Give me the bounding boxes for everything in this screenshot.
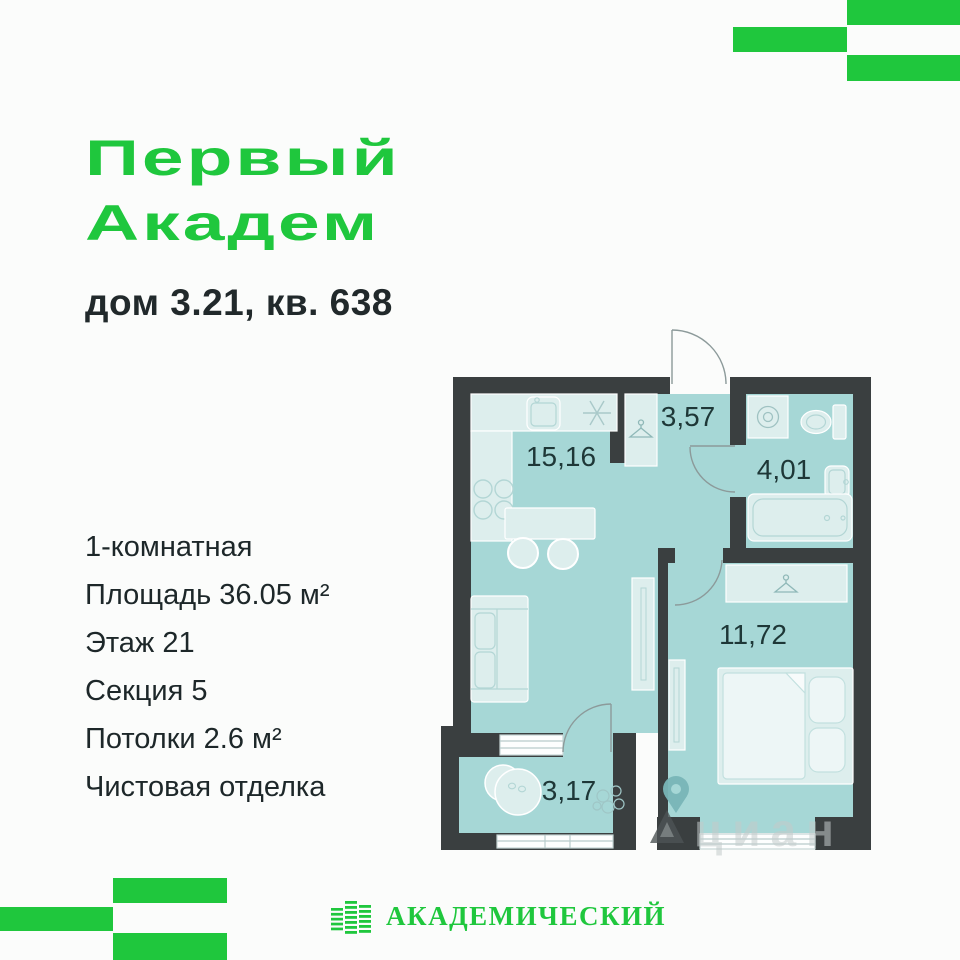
- dresser: [669, 660, 685, 750]
- deco-bar-bottom-left-2: [0, 907, 113, 931]
- floor-plan: 15,16 3,57 4,01 11,72 3,17 циан: [430, 318, 880, 860]
- dining-table: [505, 508, 595, 539]
- washing-machine-icon: [748, 396, 788, 438]
- developer-logo-text: АКАДЕМИЧЕСКИЙ: [386, 901, 666, 932]
- info-ceiling: Потолки 2.6 м²: [85, 715, 330, 763]
- chair: [508, 538, 538, 568]
- watermark-text: циан: [694, 804, 844, 856]
- balcony-inner-window: [500, 735, 563, 755]
- title-line-2: Академ: [85, 191, 401, 256]
- apartment-info-list: 1-комнатная Площадь 36.05 м² Этаж 21 Сек…: [85, 523, 330, 811]
- area-label-kitchen-living: 15,16: [526, 441, 596, 472]
- pillow: [809, 728, 845, 772]
- double-bed: [718, 668, 853, 784]
- deco-bar-top-right-3: [847, 55, 960, 81]
- info-section: Секция 5: [85, 667, 330, 715]
- info-rooms: 1-комнатная: [85, 523, 330, 571]
- shelving-unit: [632, 578, 654, 690]
- deco-bar-top-right-1: [847, 0, 960, 25]
- complex-title: Первый Академ: [85, 126, 401, 256]
- balcony-outer-window: [497, 835, 613, 848]
- deco-bar-bottom-left-3: [113, 933, 227, 960]
- balcony-table: [495, 769, 541, 815]
- area-label-balcony: 3,17: [542, 775, 597, 806]
- pillow: [809, 677, 845, 723]
- info-finish: Чистовая отделка: [85, 763, 330, 811]
- kitchen-sink-icon: [527, 397, 560, 430]
- info-area: Площадь 36.05 м²: [85, 571, 330, 619]
- washbasin-icon: [825, 466, 849, 498]
- hallway-wardrobe: [625, 394, 657, 466]
- bedroom-doorway: [675, 548, 723, 563]
- chair: [548, 539, 578, 569]
- area-label-bedroom: 11,72: [719, 619, 787, 650]
- entrance-door: [672, 330, 726, 384]
- sofa: [471, 596, 528, 702]
- balcony-doorway: [563, 733, 613, 757]
- deco-bar-bottom-left-1: [113, 878, 227, 903]
- area-label-bathroom: 4,01: [757, 454, 812, 485]
- akademichesky-logo-icon: [329, 896, 371, 940]
- info-floor: Этаж 21: [85, 619, 330, 667]
- bathroom-doorway: [730, 445, 746, 497]
- bathtub-icon: [748, 494, 852, 541]
- bedroom-wardrobe: [726, 565, 847, 602]
- deco-bar-top-right-2: [733, 27, 847, 52]
- building-apartment-subtitle: дом 3.21, кв. 638: [85, 282, 393, 324]
- entrance-doorway: [670, 377, 730, 394]
- area-label-hallway: 3,57: [661, 401, 716, 432]
- title-line-1: Первый: [85, 126, 401, 191]
